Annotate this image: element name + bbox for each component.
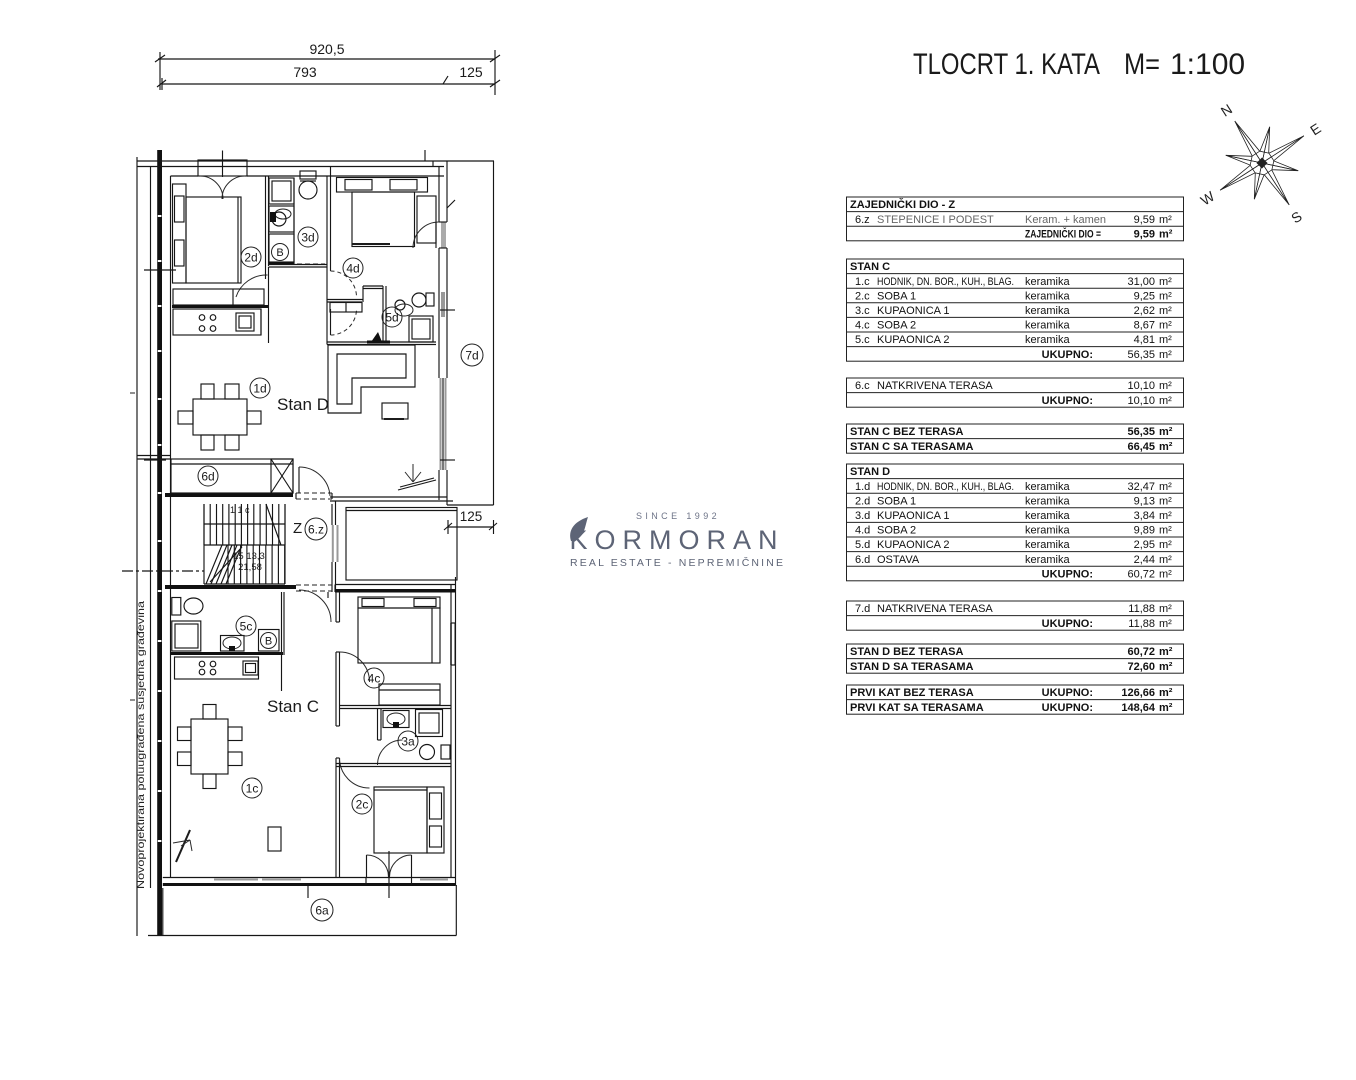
svg-text:10,10: 10,10 <box>1127 380 1155 392</box>
svg-text:4,81: 4,81 <box>1134 334 1155 346</box>
svg-text:1 1 c: 1 1 c <box>230 505 250 515</box>
svg-text:m²: m² <box>1159 228 1173 240</box>
svg-text:6.d: 6.d <box>855 554 870 566</box>
svg-text:SOBA 2: SOBA 2 <box>877 320 916 332</box>
svg-text:SOBA 2: SOBA 2 <box>877 525 916 537</box>
svg-text:keramika: keramika <box>1025 510 1071 522</box>
svg-text:m²: m² <box>1159 290 1172 302</box>
svg-text:4.c: 4.c <box>855 320 870 332</box>
svg-text:m²: m² <box>1159 495 1172 507</box>
svg-text:1c: 1c <box>246 781 259 795</box>
svg-text:920,5: 920,5 <box>309 41 344 57</box>
svg-text:60,72: 60,72 <box>1127 568 1155 580</box>
svg-text:15 13,3: 15 13,3 <box>233 551 265 562</box>
svg-text:REAL ESTATE - NEPREMIČNINE: REAL ESTATE - NEPREMIČNINE <box>570 556 786 569</box>
svg-text:9,59: 9,59 <box>1134 214 1155 226</box>
svg-text:PRVI KAT SA TERASAMA: PRVI KAT SA TERASAMA <box>850 702 984 714</box>
svg-text:8,67: 8,67 <box>1134 320 1155 332</box>
svg-text:Keram. + kamen: Keram. + kamen <box>1025 214 1106 226</box>
svg-text:UKUPNO:: UKUPNO: <box>1042 687 1093 699</box>
svg-text:5.c: 5.c <box>855 334 870 346</box>
svg-text:keramika: keramika <box>1025 554 1071 566</box>
svg-text:keramika: keramika <box>1025 481 1071 493</box>
svg-text:m²: m² <box>1159 276 1172 288</box>
svg-text:m²: m² <box>1159 603 1172 615</box>
svg-text:keramika: keramika <box>1025 290 1071 302</box>
svg-text:2,62: 2,62 <box>1134 305 1155 317</box>
svg-text:Z: Z <box>293 520 302 537</box>
svg-text:4c: 4c <box>368 671 381 685</box>
svg-text:125: 125 <box>459 64 483 80</box>
svg-text:HODNIK, DN. BOR., KUH., BLAG.: HODNIK, DN. BOR., KUH., BLAG. <box>877 481 1014 493</box>
svg-text:STAN D SA TERASAMA: STAN D SA TERASAMA <box>850 661 974 673</box>
svg-text:m²: m² <box>1159 305 1172 317</box>
svg-text:1.d: 1.d <box>855 481 870 493</box>
svg-text:6a: 6a <box>315 903 329 917</box>
svg-text:KUPAONICA 1: KUPAONICA 1 <box>877 305 950 317</box>
svg-text:3a: 3a <box>401 734 415 748</box>
svg-text:3,84: 3,84 <box>1134 510 1155 522</box>
svg-text:2c: 2c <box>356 797 369 811</box>
svg-text:2d: 2d <box>244 250 257 264</box>
svg-text:m²: m² <box>1159 320 1172 332</box>
svg-text:Stan D: Stan D <box>277 395 329 414</box>
svg-text:keramika: keramika <box>1025 495 1071 507</box>
svg-text:56,35: 56,35 <box>1127 349 1155 361</box>
svg-text:m²: m² <box>1159 441 1173 453</box>
svg-text:Stan C: Stan C <box>267 697 319 716</box>
svg-text:m²: m² <box>1159 568 1172 580</box>
svg-text:M=: M= <box>1124 48 1160 81</box>
svg-text:6d: 6d <box>201 469 214 483</box>
svg-text:7d: 7d <box>465 348 478 362</box>
svg-text:STAN D BEZ TERASA: STAN D BEZ TERASA <box>850 646 964 658</box>
svg-text:m²: m² <box>1159 687 1173 699</box>
svg-text:keramika: keramika <box>1025 320 1071 332</box>
svg-text:m²: m² <box>1159 395 1172 407</box>
svg-text:SINCE 1992: SINCE 1992 <box>636 511 720 521</box>
svg-text:m²: m² <box>1159 702 1173 714</box>
svg-text:B: B <box>265 635 272 647</box>
svg-text:m²: m² <box>1159 334 1172 346</box>
svg-text:2.d: 2.d <box>855 495 870 507</box>
svg-text:m²: m² <box>1159 380 1172 392</box>
svg-text:11,88: 11,88 <box>1128 618 1155 630</box>
svg-text:HODNIK, DN. BOR., KUH., BLAG.: HODNIK, DN. BOR., KUH., BLAG. <box>877 276 1014 288</box>
svg-text:6.z: 6.z <box>855 214 870 226</box>
svg-text:60,72: 60,72 <box>1127 646 1155 658</box>
svg-text:7.d: 7.d <box>855 603 870 615</box>
svg-text:m²: m² <box>1159 214 1172 226</box>
svg-text:m²: m² <box>1159 481 1172 493</box>
svg-text:1d: 1d <box>253 381 266 395</box>
svg-text:2.c: 2.c <box>855 290 870 302</box>
svg-text:3d: 3d <box>301 230 314 244</box>
svg-text:SOBA 1: SOBA 1 <box>877 290 916 302</box>
svg-text:9,59: 9,59 <box>1134 228 1155 240</box>
svg-text:21,58: 21,58 <box>238 562 262 573</box>
svg-text:STAN C BEZ TERASA: STAN C BEZ TERASA <box>850 426 964 438</box>
svg-text:m²: m² <box>1159 554 1172 566</box>
svg-text:ZAJEDNIČKI DIO - Z: ZAJEDNIČKI DIO - Z <box>850 198 955 211</box>
svg-text:9,25: 9,25 <box>1134 290 1155 302</box>
svg-text:KUPAONICA 2: KUPAONICA 2 <box>877 334 950 346</box>
svg-text:UKUPNO:: UKUPNO: <box>1042 702 1093 714</box>
svg-text:B: B <box>276 247 283 259</box>
svg-text:ZAJEDNIČKI DIO =: ZAJEDNIČKI DIO = <box>1025 227 1101 240</box>
svg-text:keramika: keramika <box>1025 305 1071 317</box>
svg-text:STAN D: STAN D <box>850 466 890 478</box>
svg-text:UKUPNO:: UKUPNO: <box>1042 349 1093 361</box>
svg-text:keramika: keramika <box>1025 525 1071 537</box>
svg-text:PRVI KAT BEZ TERASA: PRVI KAT BEZ TERASA <box>850 687 974 699</box>
svg-text:6.c: 6.c <box>855 380 870 392</box>
svg-text:m²: m² <box>1159 510 1172 522</box>
svg-text:6.z: 6.z <box>308 522 324 536</box>
svg-text:125: 125 <box>460 509 483 524</box>
svg-text:STAN C SA TERASAMA: STAN C SA TERASAMA <box>850 441 974 453</box>
svg-text:11,88: 11,88 <box>1128 603 1155 615</box>
svg-text:10,10: 10,10 <box>1127 395 1155 407</box>
svg-text:32,47: 32,47 <box>1127 481 1155 493</box>
svg-text:2,44: 2,44 <box>1134 554 1155 566</box>
svg-text:9,13: 9,13 <box>1134 495 1155 507</box>
svg-text:126,66: 126,66 <box>1121 687 1155 699</box>
svg-text:m²: m² <box>1159 646 1173 658</box>
svg-text:UKUPNO:: UKUPNO: <box>1042 618 1093 630</box>
svg-text:m²: m² <box>1159 661 1173 673</box>
svg-text:UKUPNO:: UKUPNO: <box>1042 568 1093 580</box>
svg-text:KUPAONICA 2: KUPAONICA 2 <box>877 539 950 551</box>
svg-text:1:100: 1:100 <box>1170 48 1245 81</box>
svg-text:Novoprojektirana poluugrađena: Novoprojektirana poluugrađena susjedna g… <box>135 601 147 889</box>
svg-text:KUPAONICA 1: KUPAONICA 1 <box>877 510 950 522</box>
svg-text:1.c: 1.c <box>855 276 870 288</box>
svg-text:UKUPNO:: UKUPNO: <box>1042 395 1093 407</box>
svg-text:9,89: 9,89 <box>1134 525 1155 537</box>
svg-text:m²: m² <box>1159 426 1173 438</box>
svg-text:31,00: 31,00 <box>1127 276 1155 288</box>
svg-text:56,35: 56,35 <box>1127 426 1155 438</box>
svg-text:5d: 5d <box>385 310 398 324</box>
svg-text:3.d: 3.d <box>855 510 870 522</box>
svg-text:4d: 4d <box>346 261 359 275</box>
svg-text:SOBA 1: SOBA 1 <box>877 495 916 507</box>
svg-text:m²: m² <box>1159 539 1172 551</box>
svg-text:3.c: 3.c <box>855 305 870 317</box>
svg-text:5c: 5c <box>240 619 253 633</box>
svg-text:OSTAVA: OSTAVA <box>877 554 920 566</box>
svg-text:66,45: 66,45 <box>1127 441 1155 453</box>
svg-text:72,60: 72,60 <box>1127 661 1155 673</box>
svg-text:NATKRIVENA TERASA: NATKRIVENA TERASA <box>877 603 993 615</box>
svg-text:keramika: keramika <box>1025 539 1071 551</box>
svg-text:STEPENICE I PODEST: STEPENICE I PODEST <box>877 214 994 226</box>
svg-text:keramika: keramika <box>1025 276 1071 288</box>
svg-text:148,64: 148,64 <box>1121 702 1156 714</box>
svg-text:keramika: keramika <box>1025 334 1071 346</box>
svg-text:STAN C: STAN C <box>850 261 890 273</box>
svg-text:5.d: 5.d <box>855 539 870 551</box>
svg-text:4.d: 4.d <box>855 525 870 537</box>
svg-text:2,95: 2,95 <box>1134 539 1155 551</box>
svg-text:m²: m² <box>1159 349 1172 361</box>
svg-text:NATKRIVENA TERASA: NATKRIVENA TERASA <box>877 380 993 392</box>
svg-text:m²: m² <box>1159 618 1172 630</box>
svg-text:KORMORAN: KORMORAN <box>570 525 787 555</box>
svg-text:TLOCRT 1. KATA: TLOCRT 1. KATA <box>913 48 1100 81</box>
svg-text:793: 793 <box>293 64 317 80</box>
svg-text:m²: m² <box>1159 525 1172 537</box>
